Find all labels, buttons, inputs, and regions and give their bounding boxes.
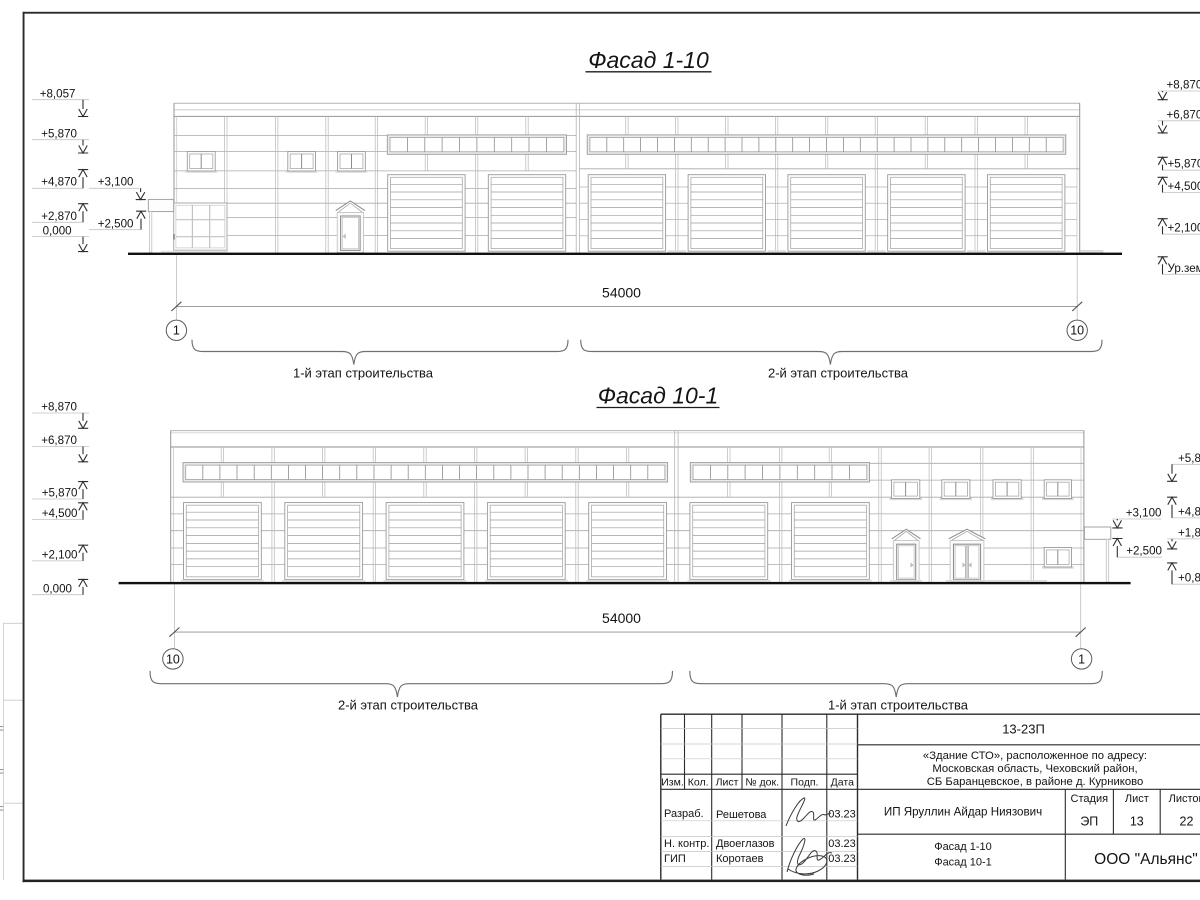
svg-text:+6,870: +6,870 — [1167, 108, 1200, 121]
svg-text:Фасад 1-10: Фасад 1-10 — [588, 47, 709, 73]
svg-text:2-й этап строительства: 2-й этап строительства — [338, 698, 479, 713]
svg-text:Коротаев: Коротаев — [716, 853, 764, 865]
svg-text:Н. контр.: Н. контр. — [664, 838, 709, 850]
svg-text:54000: 54000 — [602, 284, 641, 300]
svg-text:Фасад 10-1: Фасад 10-1 — [934, 856, 992, 868]
svg-text:№ док.: № док. — [745, 777, 779, 789]
svg-text:03.23: 03.23 — [828, 838, 856, 850]
svg-text:22: 22 — [1180, 814, 1194, 828]
svg-text:+5,870: +5,870 — [41, 128, 77, 141]
svg-text:Фасад 1-10: Фасад 1-10 — [934, 841, 992, 853]
svg-text:ИП Яруллин Айдар Ниязович: ИП Яруллин Айдар Ниязович — [884, 806, 1042, 819]
svg-text:0,000: 0,000 — [43, 224, 72, 237]
svg-text:ООО "Альянс": ООО "Альянс" — [1094, 851, 1198, 868]
svg-text:1-й этап строительства: 1-й этап строительства — [828, 698, 969, 713]
svg-text:+8,057: +8,057 — [40, 88, 76, 101]
svg-text:+2,870: +2,870 — [41, 210, 77, 223]
svg-text:+1,870: +1,870 — [1178, 526, 1200, 539]
svg-text:03.23: 03.23 — [828, 808, 856, 820]
svg-text:+0,870: +0,870 — [1178, 572, 1200, 585]
svg-text:Двоеглазов: Двоеглазов — [716, 838, 775, 850]
svg-text:Решетова: Решетова — [716, 809, 767, 821]
svg-text:Листов: Листов — [1169, 793, 1200, 805]
svg-text:+8,870: +8,870 — [41, 401, 77, 414]
svg-text:+5,870: +5,870 — [42, 487, 78, 500]
svg-text:ГИП: ГИП — [664, 853, 686, 865]
svg-text:10: 10 — [166, 652, 180, 666]
svg-text:54000: 54000 — [602, 610, 641, 626]
svg-text:СБ Баранцевское, в районе д. К: СБ Баранцевское, в районе д. Курниково — [927, 776, 1144, 788]
svg-text:ЭП: ЭП — [1080, 814, 1098, 828]
svg-text:1-й этап строительства: 1-й этап строительства — [293, 366, 434, 381]
svg-text:Московская область, Чеховский: Московская область, Чеховский район, — [932, 763, 1137, 775]
svg-text:Дата: Дата — [831, 777, 854, 789]
svg-text:1: 1 — [173, 324, 180, 338]
svg-text:Ур.земли: Ур.земли — [1168, 262, 1200, 275]
svg-text:0,000: 0,000 — [43, 582, 72, 595]
svg-text:+2,100: +2,100 — [42, 549, 78, 562]
svg-text:Кол.: Кол. — [688, 777, 709, 789]
svg-text:Стадия: Стадия — [1071, 793, 1109, 805]
svg-text:+8,870: +8,870 — [1167, 79, 1200, 92]
svg-text:Фасад 10-1: Фасад 10-1 — [598, 383, 719, 409]
svg-text:+5,870: +5,870 — [1168, 158, 1200, 171]
svg-text:+4,870: +4,870 — [1178, 505, 1200, 518]
svg-text:Разраб.: Разраб. — [664, 808, 704, 820]
svg-text:+4,500: +4,500 — [42, 507, 78, 520]
svg-text:03.23: 03.23 — [828, 853, 856, 865]
svg-text:+6,870: +6,870 — [41, 434, 77, 447]
svg-text:+3,100: +3,100 — [98, 176, 134, 189]
svg-text:+3,100: +3,100 — [1126, 506, 1162, 519]
svg-text:2-й этап строительства: 2-й этап строительства — [768, 366, 909, 381]
svg-text:Изм.: Изм. — [661, 777, 684, 789]
svg-text:+2,500: +2,500 — [1126, 545, 1162, 558]
svg-text:+5,870: +5,870 — [1178, 452, 1200, 465]
svg-text:Лист: Лист — [716, 777, 739, 789]
svg-text:10: 10 — [1070, 324, 1084, 338]
svg-text:13-23П: 13-23П — [1002, 721, 1045, 736]
svg-text:+4,870: +4,870 — [41, 176, 77, 189]
svg-text:«Здание СТО», расположенное по: «Здание СТО», расположенное по адресу: — [923, 750, 1147, 762]
svg-text:13: 13 — [1130, 814, 1144, 828]
svg-text:+4,500: +4,500 — [1168, 180, 1200, 193]
svg-text:Лист: Лист — [1125, 793, 1149, 805]
svg-text:+2,500: +2,500 — [98, 217, 134, 230]
svg-text:Подп.: Подп. — [791, 777, 819, 789]
svg-text:1: 1 — [1078, 652, 1085, 666]
svg-text:+2,100: +2,100 — [1168, 222, 1200, 235]
